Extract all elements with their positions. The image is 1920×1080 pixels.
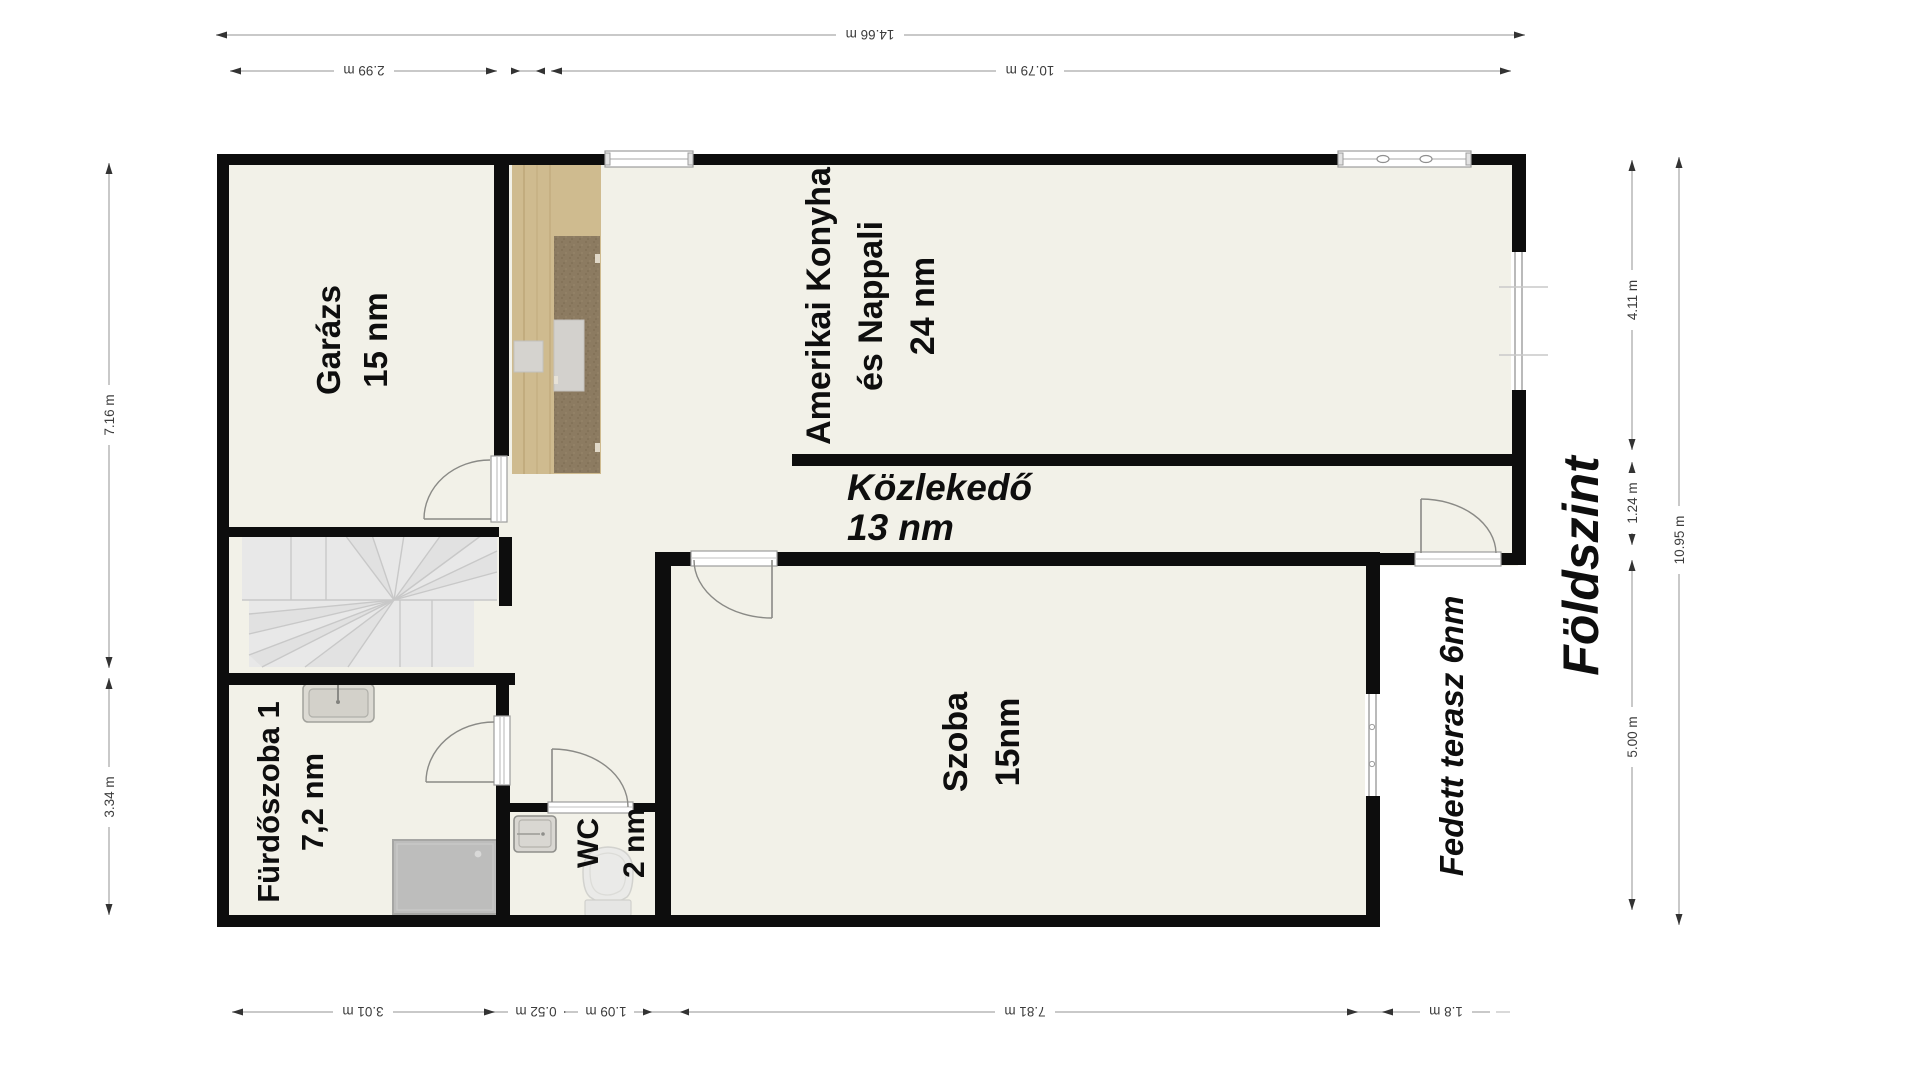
svg-text:1.09 m: 1.09 m	[585, 1004, 626, 1019]
svg-text:Garázs: Garázs	[310, 285, 347, 395]
svg-text:Amerikai Konyha: Amerikai Konyha	[800, 166, 838, 445]
svg-text:13 nm: 13 nm	[847, 507, 954, 548]
svg-text:2 nm: 2 nm	[618, 808, 651, 878]
svg-text:Földszint: Földszint	[1553, 454, 1609, 676]
svg-text:10.79 m: 10.79 m	[1006, 63, 1055, 78]
svg-text:7.16 m: 7.16 m	[102, 394, 117, 435]
svg-text:3.01 m: 3.01 m	[342, 1004, 383, 1019]
svg-text:7,2 nm: 7,2 nm	[295, 753, 330, 851]
svg-text:10.95 m: 10.95 m	[1672, 516, 1687, 565]
svg-text:Szoba: Szoba	[937, 691, 975, 792]
svg-text:Közlekedő: Közlekedő	[847, 467, 1033, 508]
svg-text:2.99 m: 2.99 m	[343, 63, 384, 78]
svg-text:Fürdőszoba 1: Fürdőszoba 1	[251, 701, 286, 903]
svg-text:és Nappali: és Nappali	[852, 221, 890, 391]
svg-text:0.52 m: 0.52 m	[515, 1004, 556, 1019]
svg-text:WC: WC	[572, 818, 605, 868]
svg-text:1.8 m: 1.8 m	[1429, 1004, 1463, 1019]
svg-text:Fedett terasz 6nm: Fedett terasz 6nm	[1433, 596, 1470, 877]
svg-text:1.24 m: 1.24 m	[1625, 482, 1640, 523]
svg-text:14.66 m: 14.66 m	[846, 27, 895, 42]
svg-text:15nm: 15nm	[989, 698, 1027, 787]
svg-text:15 nm: 15 nm	[357, 292, 394, 387]
svg-text:4.11 m: 4.11 m	[1625, 280, 1640, 320]
svg-text:3.34 m: 3.34 m	[102, 776, 117, 817]
svg-text:5.00 m: 5.00 m	[1625, 716, 1640, 757]
svg-text:24 nm: 24 nm	[904, 257, 942, 355]
svg-text:7.81 m: 7.81 m	[1004, 1004, 1045, 1019]
